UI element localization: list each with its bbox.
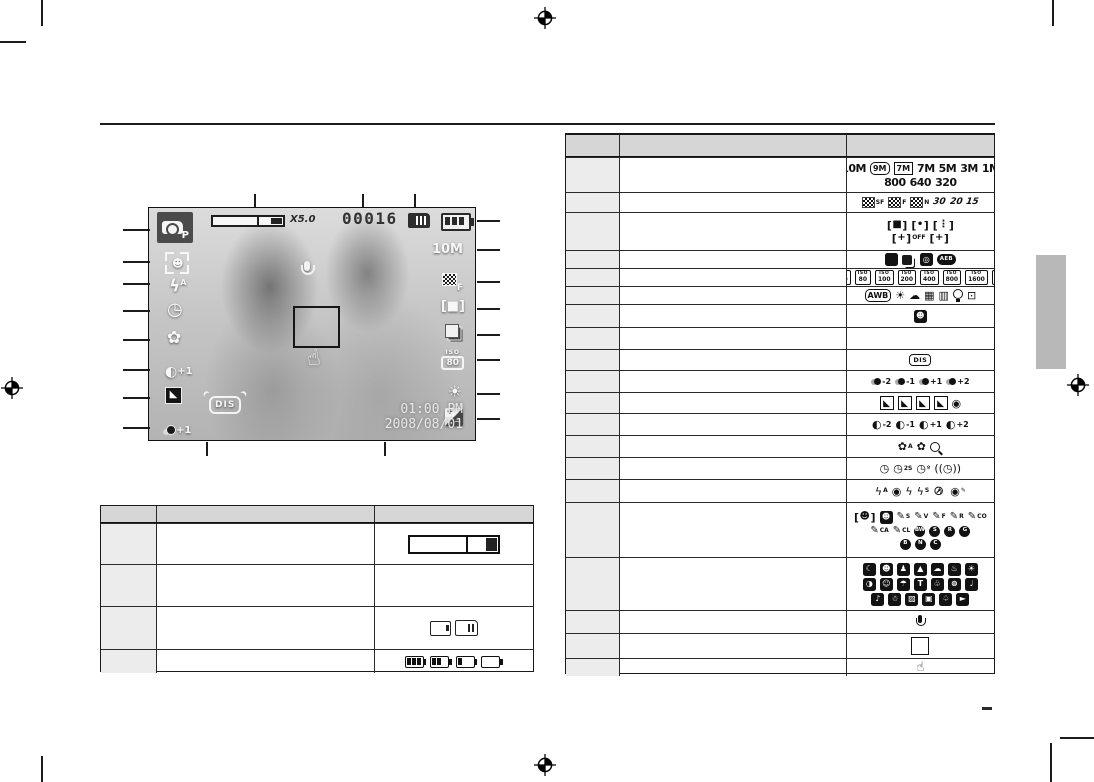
date-time-description-cell [619, 328, 846, 349]
sz-3m-icon: 3M [960, 163, 978, 174]
drv-continuous-icon [902, 255, 912, 265]
white-balance-icon-cell: AWB☀☁▦▥⊡ [846, 287, 994, 304]
met-spot-icon: [•] [911, 220, 928, 231]
q-n-icon: N [910, 197, 929, 208]
trim-mark-bottom-right-h [1060, 737, 1094, 739]
flash-slow-icon: ϟS [917, 486, 930, 497]
battery-indicator-no-cell [101, 650, 156, 673]
image-size-indicator: 10M [432, 242, 463, 257]
photo-style-selector-no-cell [566, 503, 619, 557]
table-header-row [566, 135, 994, 157]
macro-icon: ✿ [167, 330, 181, 347]
contrast-icon-cell: ◐-2◐-1◐+1◐+2 [846, 414, 994, 435]
pen-soft-icon: ✎S [897, 512, 911, 522]
pen-cool-icon: ✎CO [968, 512, 987, 522]
right-indicator-table: 10M9M7M7M5M3M1M800640320SFFN302015[■][•]… [565, 133, 995, 674]
header-no-cell [566, 135, 619, 156]
face-detection-icon: ☻ [165, 252, 189, 274]
page-number-dash [982, 707, 992, 710]
flash-redeye-fix-icon: ◉✎ [950, 486, 966, 497]
battery-icon [441, 213, 471, 231]
white-balance-indicator: ☀ [448, 382, 462, 401]
timer-2s-icon: ◷2S [893, 463, 912, 474]
voice-memo-description-cell [619, 611, 846, 633]
sharpness-row: ◣◣◣◣◉ [566, 392, 994, 413]
photo-style-selector-description-cell [619, 503, 846, 557]
self-timer-icon-cell: ◷◷2S◷º((◷)) [846, 458, 994, 479]
scene-17-icon: ▨ [905, 593, 918, 606]
image-size-description-cell [619, 158, 846, 192]
self-timer-no-cell [566, 458, 619, 479]
scene-16-icon: ☃ [888, 593, 901, 606]
scene-18-icon: ▣ [922, 593, 935, 606]
image-stabilizer-icon-cell: DIS [846, 350, 994, 370]
scene-mode-row: ☾☻♟▲☁♨☀◑☺☂T♧⊜♩♪☃▨▣♤► [566, 557, 994, 610]
fps-20-icon: 20 [949, 198, 963, 207]
pen-calm-icon: ✎CA [870, 526, 888, 536]
camera-lcd-preview: P X5.0 00016 ☻ ϟA ◷ ✿ ◐+1 ◣ +1 DIS ☝ 10M… [148, 207, 476, 441]
drv-aeb-icon: AEB [937, 254, 956, 265]
callout-tick-top-3 [414, 194, 416, 207]
bat-3-icon [405, 656, 427, 668]
metering-af-area-icon-cell: [■][•][⋮][+]OFF[+] [846, 213, 994, 250]
self-timer-row: ◷◷2S◷º((◷)) [566, 457, 994, 479]
color-custom-icon: C [930, 539, 941, 550]
memory-card-indicator-description-cell [156, 607, 374, 649]
callout-line-left-1 [123, 229, 150, 231]
sat-plus2-icon: +2 [946, 378, 969, 386]
image-stabilizer-row: DIS [566, 349, 994, 370]
manual-page: P X5.0 00016 ☻ ϟA ◷ ✿ ◐+1 ◣ +1 DIS ☝ 10M… [0, 0, 1094, 782]
scene-6-icon: ♨ [948, 563, 961, 576]
voice-memo-icon-cell [846, 611, 994, 633]
color-sepia-icon: S [929, 526, 940, 537]
memory-card-indicator-row [101, 606, 533, 649]
continuous-shot-indicator [445, 324, 459, 338]
scene-7-icon: ☀ [965, 563, 978, 576]
callout-line-left-6 [123, 369, 150, 371]
face-detection-mark-no-cell [566, 305, 619, 327]
scene-mode-icon-cell: ☾☻♟▲☁♨☀◑☺☂T♧⊜♩♪☃▨▣♤► [846, 558, 994, 610]
metering-af-area-no-cell [566, 213, 619, 250]
macro-no-cell [566, 436, 619, 457]
wb-fluorescent-l-icon: ▥ [939, 290, 949, 301]
lt-zoombar-icon [408, 535, 500, 554]
battery-indicator-row [101, 649, 533, 673]
iso-1600-icon: ISO1600 [965, 270, 988, 285]
scene-19-icon: ♤ [939, 593, 952, 606]
sharp-vivid2-icon: ◣ [934, 396, 948, 410]
scene-9-icon: ☺ [880, 578, 893, 591]
metering-indicator: [■] [441, 299, 465, 314]
quality-frame-rate-no-cell [566, 193, 619, 212]
sat-minus2-icon: -2 [871, 378, 891, 386]
wb-fluorescent-h-icon: ▦ [924, 290, 934, 301]
callout-line-right-2 [477, 249, 500, 251]
callout-tick-top-1 [254, 194, 256, 207]
con-minus2-icon: ◐-2 [872, 419, 892, 430]
drv-motion-icon: ◎ [920, 253, 933, 266]
optical-digital-zoom-bar-row [101, 523, 533, 564]
sz-7m-icon: 7M [917, 163, 935, 174]
contrast-no-cell [566, 414, 619, 435]
sz-9mw-icon: 9M [870, 162, 890, 175]
q-sf-icon: SF [862, 197, 884, 208]
saturation-no-cell [566, 371, 619, 392]
style-frame-normal-icon: [☻] [854, 512, 876, 523]
header-no-cell [101, 506, 156, 522]
sz-7mw-icon: 7M [894, 162, 914, 175]
drv-single-icon [885, 253, 898, 266]
flash-fill-icon: ϟ [905, 486, 912, 497]
flash-auto-icon: ϟA [875, 486, 888, 497]
available-shots-no-cell [101, 565, 156, 606]
macro-auto-icon: ✿A [898, 441, 913, 452]
sat-minus1-icon: -1 [895, 378, 915, 386]
header-description-cell [619, 135, 846, 156]
scene-mode-no-cell [566, 558, 619, 610]
scene-5-icon: ☁ [931, 563, 944, 576]
scene-4-icon: ▲ [914, 563, 927, 576]
color-bw-icon: BW [914, 526, 925, 537]
drive-mode-description-cell [619, 251, 846, 268]
metering-af-area-row: [■][•][⋮][+]OFF[+] [566, 212, 994, 250]
saturation-description-cell [619, 371, 846, 392]
sharp-vivid1-icon: ◣ [916, 396, 930, 410]
face-detection-mark-icon-cell: ☻ [846, 305, 994, 327]
image-stabilizer-description-cell [619, 350, 846, 370]
macro-description-cell [619, 436, 846, 457]
saturation-icon-cell: -2-1+1+2 [846, 371, 994, 392]
header-description-cell [156, 506, 374, 522]
quality-frame-rate-description-cell [619, 193, 846, 212]
flash-redeye-icon: ◉ [892, 486, 902, 497]
bat-1-icon [456, 656, 478, 668]
photo-style-selector-row: [☻]☻✎S✎V✎F✎R✎CO✎CA✎CLBWSRGBNC [566, 502, 994, 557]
trim-mark-top-left-h [0, 41, 26, 43]
scene-13-icon: ⊜ [948, 578, 961, 591]
fps-15-icon: 15 [966, 198, 980, 207]
photo-style-selector-icon-cell: [☻]☻✎S✎V✎F✎R✎CO✎CA✎CLBWSRGBNC [846, 503, 994, 557]
bat-2-icon [430, 656, 452, 668]
sharp-soft2-icon: ◣ [880, 396, 894, 410]
flash-no-cell [566, 480, 619, 502]
registration-mark-bottom [534, 754, 556, 776]
header-icon-cell [374, 506, 533, 522]
macro-icon: ✿ [917, 441, 926, 452]
wb-auto-icon: AWB [865, 289, 892, 302]
pen-classic-icon: ✎CL [893, 526, 911, 536]
zoom-rate-label: X5.0 [290, 214, 315, 225]
q-f-icon: F [888, 197, 906, 208]
pen-vivid-icon: ✎V [914, 512, 928, 522]
callout-tick-top-2 [362, 194, 364, 207]
drive-mode-row: ◎AEB [566, 250, 994, 268]
header-icon-cell [846, 135, 994, 156]
autofocus-frame-row [566, 633, 994, 658]
autofocus-frame-description-cell [619, 634, 846, 658]
iso-80-icon: ISO80 [855, 270, 871, 285]
trim-mark-top-right-v [1052, 0, 1054, 26]
date-time-row [566, 327, 994, 349]
registration-mark-right [1067, 374, 1089, 396]
white-balance-no-cell [566, 287, 619, 304]
camera-shake-warning-icon-cell: ☝ [846, 659, 994, 676]
camera-shake-warning-icon: ☝ [305, 345, 322, 372]
con-plus1-icon: ◐+1 [919, 419, 942, 430]
self-timer-description-cell [619, 458, 846, 479]
callout-line-right-7 [477, 393, 500, 395]
callout-tick-bottom-1 [206, 442, 208, 456]
date-time-no-cell [566, 328, 619, 349]
self-timer-icon: ◷ [167, 301, 183, 319]
con-plus2-icon: ◐+2 [946, 419, 969, 430]
scene-10-icon: ☂ [897, 578, 910, 591]
dis-badge-icon: DIS [909, 354, 931, 366]
timer-motion-icon: ((◷)) [934, 463, 961, 474]
card-mmc-icon [455, 620, 478, 636]
drive-mode-icon-cell: ◎AEB [846, 251, 994, 268]
recording-mode-icon: P [157, 212, 193, 243]
callout-line-right-5 [477, 334, 500, 336]
sharpness-no-cell [566, 393, 619, 413]
sharpness-indicator: ◣ [165, 387, 182, 404]
macro-super-icon [930, 442, 940, 452]
wb-daylight-icon: ☀ [895, 290, 905, 301]
image-size-row: 10M9M7M7M5M3M1M800640320 [566, 157, 994, 192]
sz-1m-icon: 1M [982, 163, 994, 174]
image-stabilizer-no-cell [566, 350, 619, 370]
contrast-indicator: ◐+1 [165, 361, 193, 380]
sz-5m-icon: 5M [939, 163, 957, 174]
section-side-tab [1036, 255, 1066, 369]
optical-digital-zoom-bar-description-cell [156, 524, 374, 564]
iso-auto-icon: ISOAUTO [846, 270, 851, 285]
scene-11-icon: T [914, 578, 927, 591]
iso-3200-icon: ISO3200 [992, 270, 994, 285]
saturation-indicator: +1 [163, 420, 191, 439]
bat-0-icon [481, 656, 503, 668]
sat-plus1-icon: +1 [919, 378, 942, 386]
image-size-no-cell [566, 158, 619, 192]
timer-double-icon: ◷º [916, 463, 930, 474]
available-shots-description-cell [156, 565, 374, 606]
scene-15-icon: ♪ [871, 593, 884, 606]
saturation-row: -2-1+1+2 [566, 370, 994, 392]
face-detection-mark-row: ☻ [566, 304, 994, 327]
memory-card-indicator-no-cell [101, 607, 156, 649]
drive-mode-no-cell [566, 251, 619, 268]
flash-icon-cell: ϟA◉ϟϟSϟ⊘◉✎ [846, 480, 994, 502]
iso-icon-cell: ISOAUTOISO80ISO100ISO200ISO400ISO800ISO1… [846, 269, 994, 286]
available-shots-icon-cell [374, 565, 533, 606]
callout-line-left-2 [123, 261, 150, 263]
voice-memo-icon [914, 615, 926, 630]
scene-mode-description-cell [619, 558, 846, 610]
color-red-icon: R [944, 526, 955, 537]
camera-lens-glyph [166, 223, 179, 236]
callout-line-right-6 [477, 359, 500, 361]
color-green-icon: G [959, 526, 970, 537]
iso-200-icon: ISO200 [898, 270, 917, 285]
battery-indicator-icon-cell [374, 650, 533, 673]
program-mode-letter: P [182, 230, 189, 241]
scene-1-icon: ☾ [863, 563, 876, 576]
con-minus1-icon: ◐-1 [895, 419, 915, 430]
flash-row: ϟA◉ϟϟSϟ⊘◉✎ [566, 479, 994, 502]
face-detection-mark-icon: ☻ [914, 310, 927, 323]
face-detection-mark-description-cell [619, 305, 846, 327]
table-header-row [101, 506, 533, 523]
metering-af-area-description-cell [619, 213, 846, 250]
image-size-icon-cell: 10M9M7M7M5M3M1M800640320 [846, 158, 994, 192]
card-plain-icon [430, 621, 451, 636]
pen-forest-icon: ✎F [932, 512, 946, 522]
sharp-soft1-icon: ◣ [898, 396, 912, 410]
wb-cloudy-icon: ☁ [909, 290, 920, 301]
iso-no-cell [566, 269, 619, 286]
scene-20-icon: ► [956, 593, 969, 606]
wb-custom-icon: ⊡ [967, 290, 976, 301]
scene-12-icon: ♧ [931, 578, 944, 591]
iso-800-icon: ISO800 [943, 270, 962, 285]
autofocus-frame-no-cell [566, 634, 619, 658]
iso-400-icon: ISO400 [920, 270, 939, 285]
camera-shake-warning-description-cell [619, 659, 846, 676]
met-center-icon: [⋮] [933, 220, 954, 231]
met-multi-icon: [■] [887, 220, 908, 231]
image-stabilizer-badge: DIS [209, 396, 241, 414]
trim-mark-top-left-v [41, 0, 43, 26]
voice-memo-no-cell [566, 611, 619, 633]
callout-line-left-8 [123, 427, 150, 429]
zoom-bar [211, 215, 285, 227]
scene-2-icon: ☻ [880, 563, 893, 576]
sz-640-icon: 640 [910, 177, 931, 188]
date-time-stamp: 01:00 PM 2008/08/01 [385, 402, 463, 432]
available-shots-row [101, 564, 533, 606]
callout-line-right-1 [477, 220, 500, 222]
acb-icon: ◉ [952, 398, 962, 409]
registration-mark-top [534, 7, 556, 29]
camera-shake-warning-row: ☝ [566, 658, 994, 676]
page-header-rule [100, 123, 995, 125]
optical-digital-zoom-bar-icon-cell [374, 524, 533, 564]
scene-8-icon: ◑ [863, 578, 876, 591]
quality-frame-rate-row: SFFN302015 [566, 192, 994, 212]
af-center-on-icon: [+] [930, 233, 949, 244]
iso-indicator: ISO80 [441, 349, 464, 370]
callout-line-left-4 [123, 310, 150, 312]
callout-line-right-4 [477, 308, 500, 310]
autofocus-frame-icon-cell [846, 634, 994, 658]
shots-remaining-counter: 00016 [342, 209, 398, 228]
style-frame-dark-icon: ☻ [880, 511, 893, 524]
quality-indicator: F [442, 271, 463, 293]
sz-10m-icon: 10M [846, 163, 866, 174]
left-indicator-table [100, 505, 534, 672]
optical-digital-zoom-bar-no-cell [101, 524, 156, 564]
memory-card-indicator-icon-cell [374, 607, 533, 649]
date-time-icon-cell [846, 328, 994, 349]
callout-line-right-3 [477, 281, 500, 283]
registration-mark-left [1, 377, 23, 399]
contrast-description-cell [619, 414, 846, 435]
voice-memo-row [566, 610, 994, 633]
macro-row: ✿A✿ [566, 435, 994, 457]
iso-description-cell [619, 269, 846, 286]
trim-mark-bottom-left-v [41, 756, 43, 782]
scene-3-icon: ♟ [897, 563, 910, 576]
af-center-off-icon: [+]OFF [892, 233, 926, 244]
flash-description-cell [619, 480, 846, 502]
shake-warning-icon: ☝ [916, 661, 924, 674]
sz-320-icon: 320 [935, 177, 956, 188]
iso-100-icon: ISO100 [875, 270, 894, 285]
af-frame-icon [911, 637, 929, 655]
fps-30-icon: 30 [933, 198, 947, 207]
sz-800-icon: 800 [884, 177, 905, 188]
battery-indicator-description-cell [156, 650, 374, 673]
iso-row: ISOAUTOISO80ISO100ISO200ISO400ISO800ISO1… [566, 268, 994, 286]
quality-frame-rate-icon-cell: SFFN302015 [846, 193, 994, 212]
time-stamp: 01:00 PM [385, 402, 463, 417]
color-negative-icon: N [915, 539, 926, 550]
white-balance-description-cell [619, 287, 846, 304]
sharpness-description-cell [619, 393, 846, 413]
flash-off-icon: ϟ⊘ [933, 485, 946, 498]
callout-tick-bottom-2 [384, 442, 386, 456]
wb-tungsten-icon [953, 289, 963, 299]
autofocus-frame [293, 306, 340, 348]
callout-line-left-7 [123, 397, 150, 399]
pen-retro-icon: ✎R [950, 512, 964, 522]
contrast-row: ◐-2◐-1◐+1◐+2 [566, 413, 994, 435]
white-balance-row: AWB☀☁▦▥⊡ [566, 286, 994, 304]
timer-10s-icon: ◷ [880, 463, 890, 474]
macro-icon-cell: ✿A✿ [846, 436, 994, 457]
flash-auto-icon: ϟA [169, 274, 186, 296]
camera-shake-warning-no-cell [566, 659, 619, 676]
sharpness-icon-cell: ◣◣◣◣◉ [846, 393, 994, 413]
callout-line-left-5 [123, 339, 150, 341]
voice-memo-mic-icon [300, 261, 314, 281]
callout-line-left-3 [123, 283, 150, 285]
color-blue-icon: B [900, 539, 911, 550]
callout-line-right-8 [477, 418, 500, 420]
trim-mark-bottom-right-v [1050, 743, 1052, 782]
scene-14-icon: ♩ [965, 578, 978, 591]
date-stamp: 2008/08/01 [385, 417, 463, 432]
memory-card-icon [408, 213, 430, 228]
